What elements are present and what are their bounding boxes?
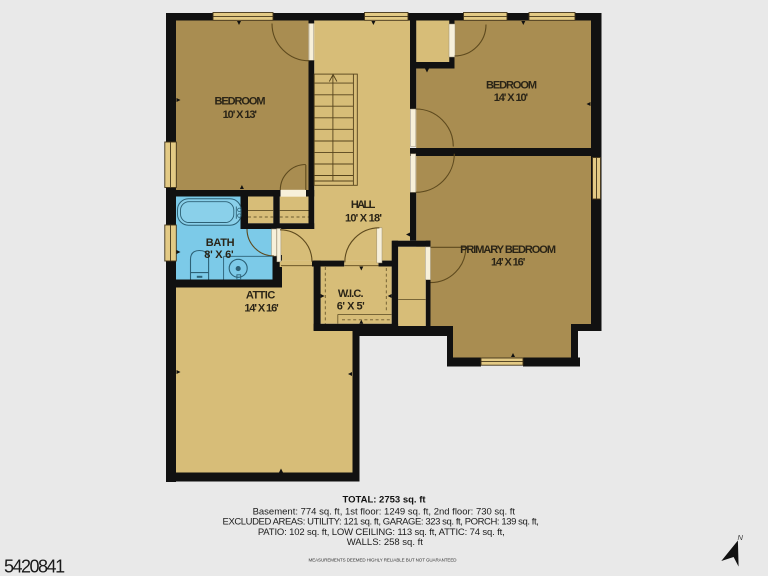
svg-text:PRIMARY BEDROOM: PRIMARY BEDROOM [460,244,556,256]
svg-text:ATTIC: ATTIC [246,290,275,302]
svg-text:BEDROOM: BEDROOM [486,80,537,92]
svg-text:10' X 18': 10' X 18' [345,212,382,224]
svg-text:BATH: BATH [206,237,235,249]
svg-text:6' X 5': 6' X 5' [337,301,365,313]
svg-text:N: N [738,533,744,542]
svg-text:8' X 6': 8' X 6' [204,249,234,261]
svg-text:TOTAL: 2753 sq. ft: TOTAL: 2753 sq. ft [342,494,426,505]
svg-text:WALLS: 258 sq. ft: WALLS: 258 sq. ft [347,537,424,548]
svg-text:MEASUREMENTS DEEMED HIGHLY REL: MEASUREMENTS DEEMED HIGHLY RELIABLE BUT … [309,557,458,562]
svg-text:BEDROOM: BEDROOM [214,96,265,108]
svg-text:14' X 16': 14' X 16' [491,256,526,268]
svg-text:14' X 10': 14' X 10' [494,92,529,104]
svg-text:HALL: HALL [351,199,376,211]
svg-text:10' X 13': 10' X 13' [223,109,258,121]
svg-text:W.I.C.: W.I.C. [338,288,364,300]
svg-text:14' X 16': 14' X 16' [244,303,279,315]
svg-text:5420841: 5420841 [4,557,65,576]
